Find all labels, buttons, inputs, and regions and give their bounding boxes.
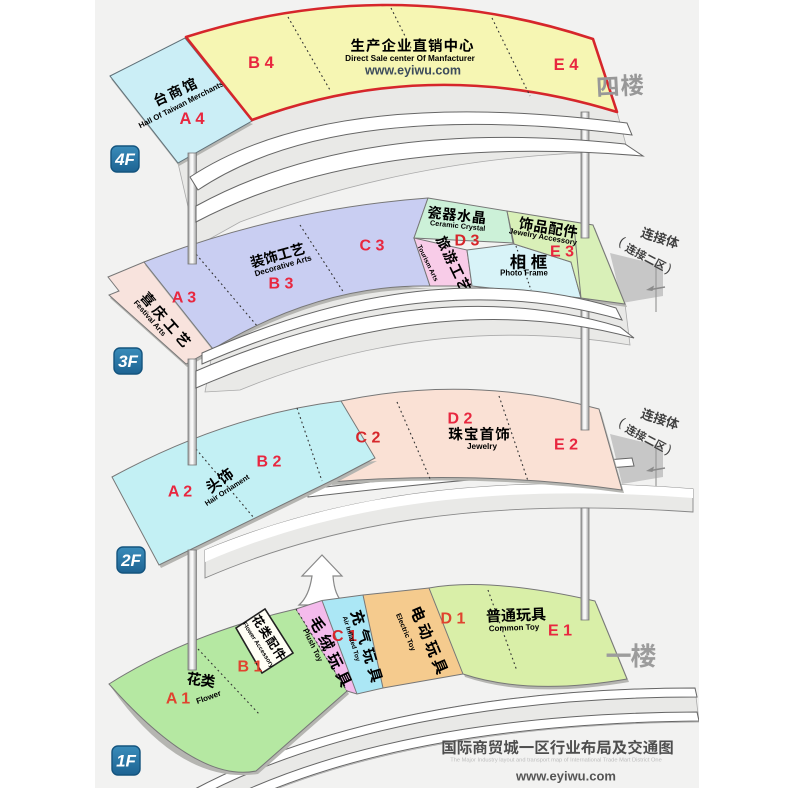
svg-text:4F: 4F xyxy=(114,150,135,169)
svg-text:B 4: B 4 xyxy=(248,54,275,72)
svg-text:D 1: D 1 xyxy=(441,611,466,628)
svg-text:1F: 1F xyxy=(116,751,136,770)
svg-text:A 2: A 2 xyxy=(168,484,192,501)
svg-text:Direct Sale center Of Manfactu: Direct Sale center Of Manfacturer xyxy=(345,54,475,63)
svg-text:C 2: C 2 xyxy=(356,430,381,447)
svg-text:A 3: A 3 xyxy=(172,290,196,307)
svg-text:www.eyiwu.com: www.eyiwu.com xyxy=(515,769,616,784)
svg-text:D 2: D 2 xyxy=(448,411,473,428)
svg-text:2F: 2F xyxy=(120,551,141,570)
svg-text:E 1: E 1 xyxy=(548,623,572,640)
svg-text:Jewelry: Jewelry xyxy=(467,442,497,451)
svg-text:A 1: A 1 xyxy=(166,691,190,708)
svg-text:C 3: C 3 xyxy=(360,238,385,255)
svg-text:A 4: A 4 xyxy=(179,110,205,128)
svg-text:B 2: B 2 xyxy=(257,454,282,471)
svg-text:B 3: B 3 xyxy=(269,276,294,293)
svg-text:B 1: B 1 xyxy=(238,659,263,676)
svg-text:E 2: E 2 xyxy=(554,437,578,454)
svg-text:Photo Frame: Photo Frame xyxy=(500,269,548,278)
svg-text:3F: 3F xyxy=(118,352,138,371)
svg-text:Common Toy: Common Toy xyxy=(489,622,540,633)
svg-text:www.eyiwu.com: www.eyiwu.com xyxy=(364,63,461,77)
svg-text:D 3: D 3 xyxy=(455,233,480,250)
svg-text:E 4: E 4 xyxy=(554,56,580,74)
svg-text:The Major Industry layout and: The Major Industry layout and transport … xyxy=(450,757,661,763)
